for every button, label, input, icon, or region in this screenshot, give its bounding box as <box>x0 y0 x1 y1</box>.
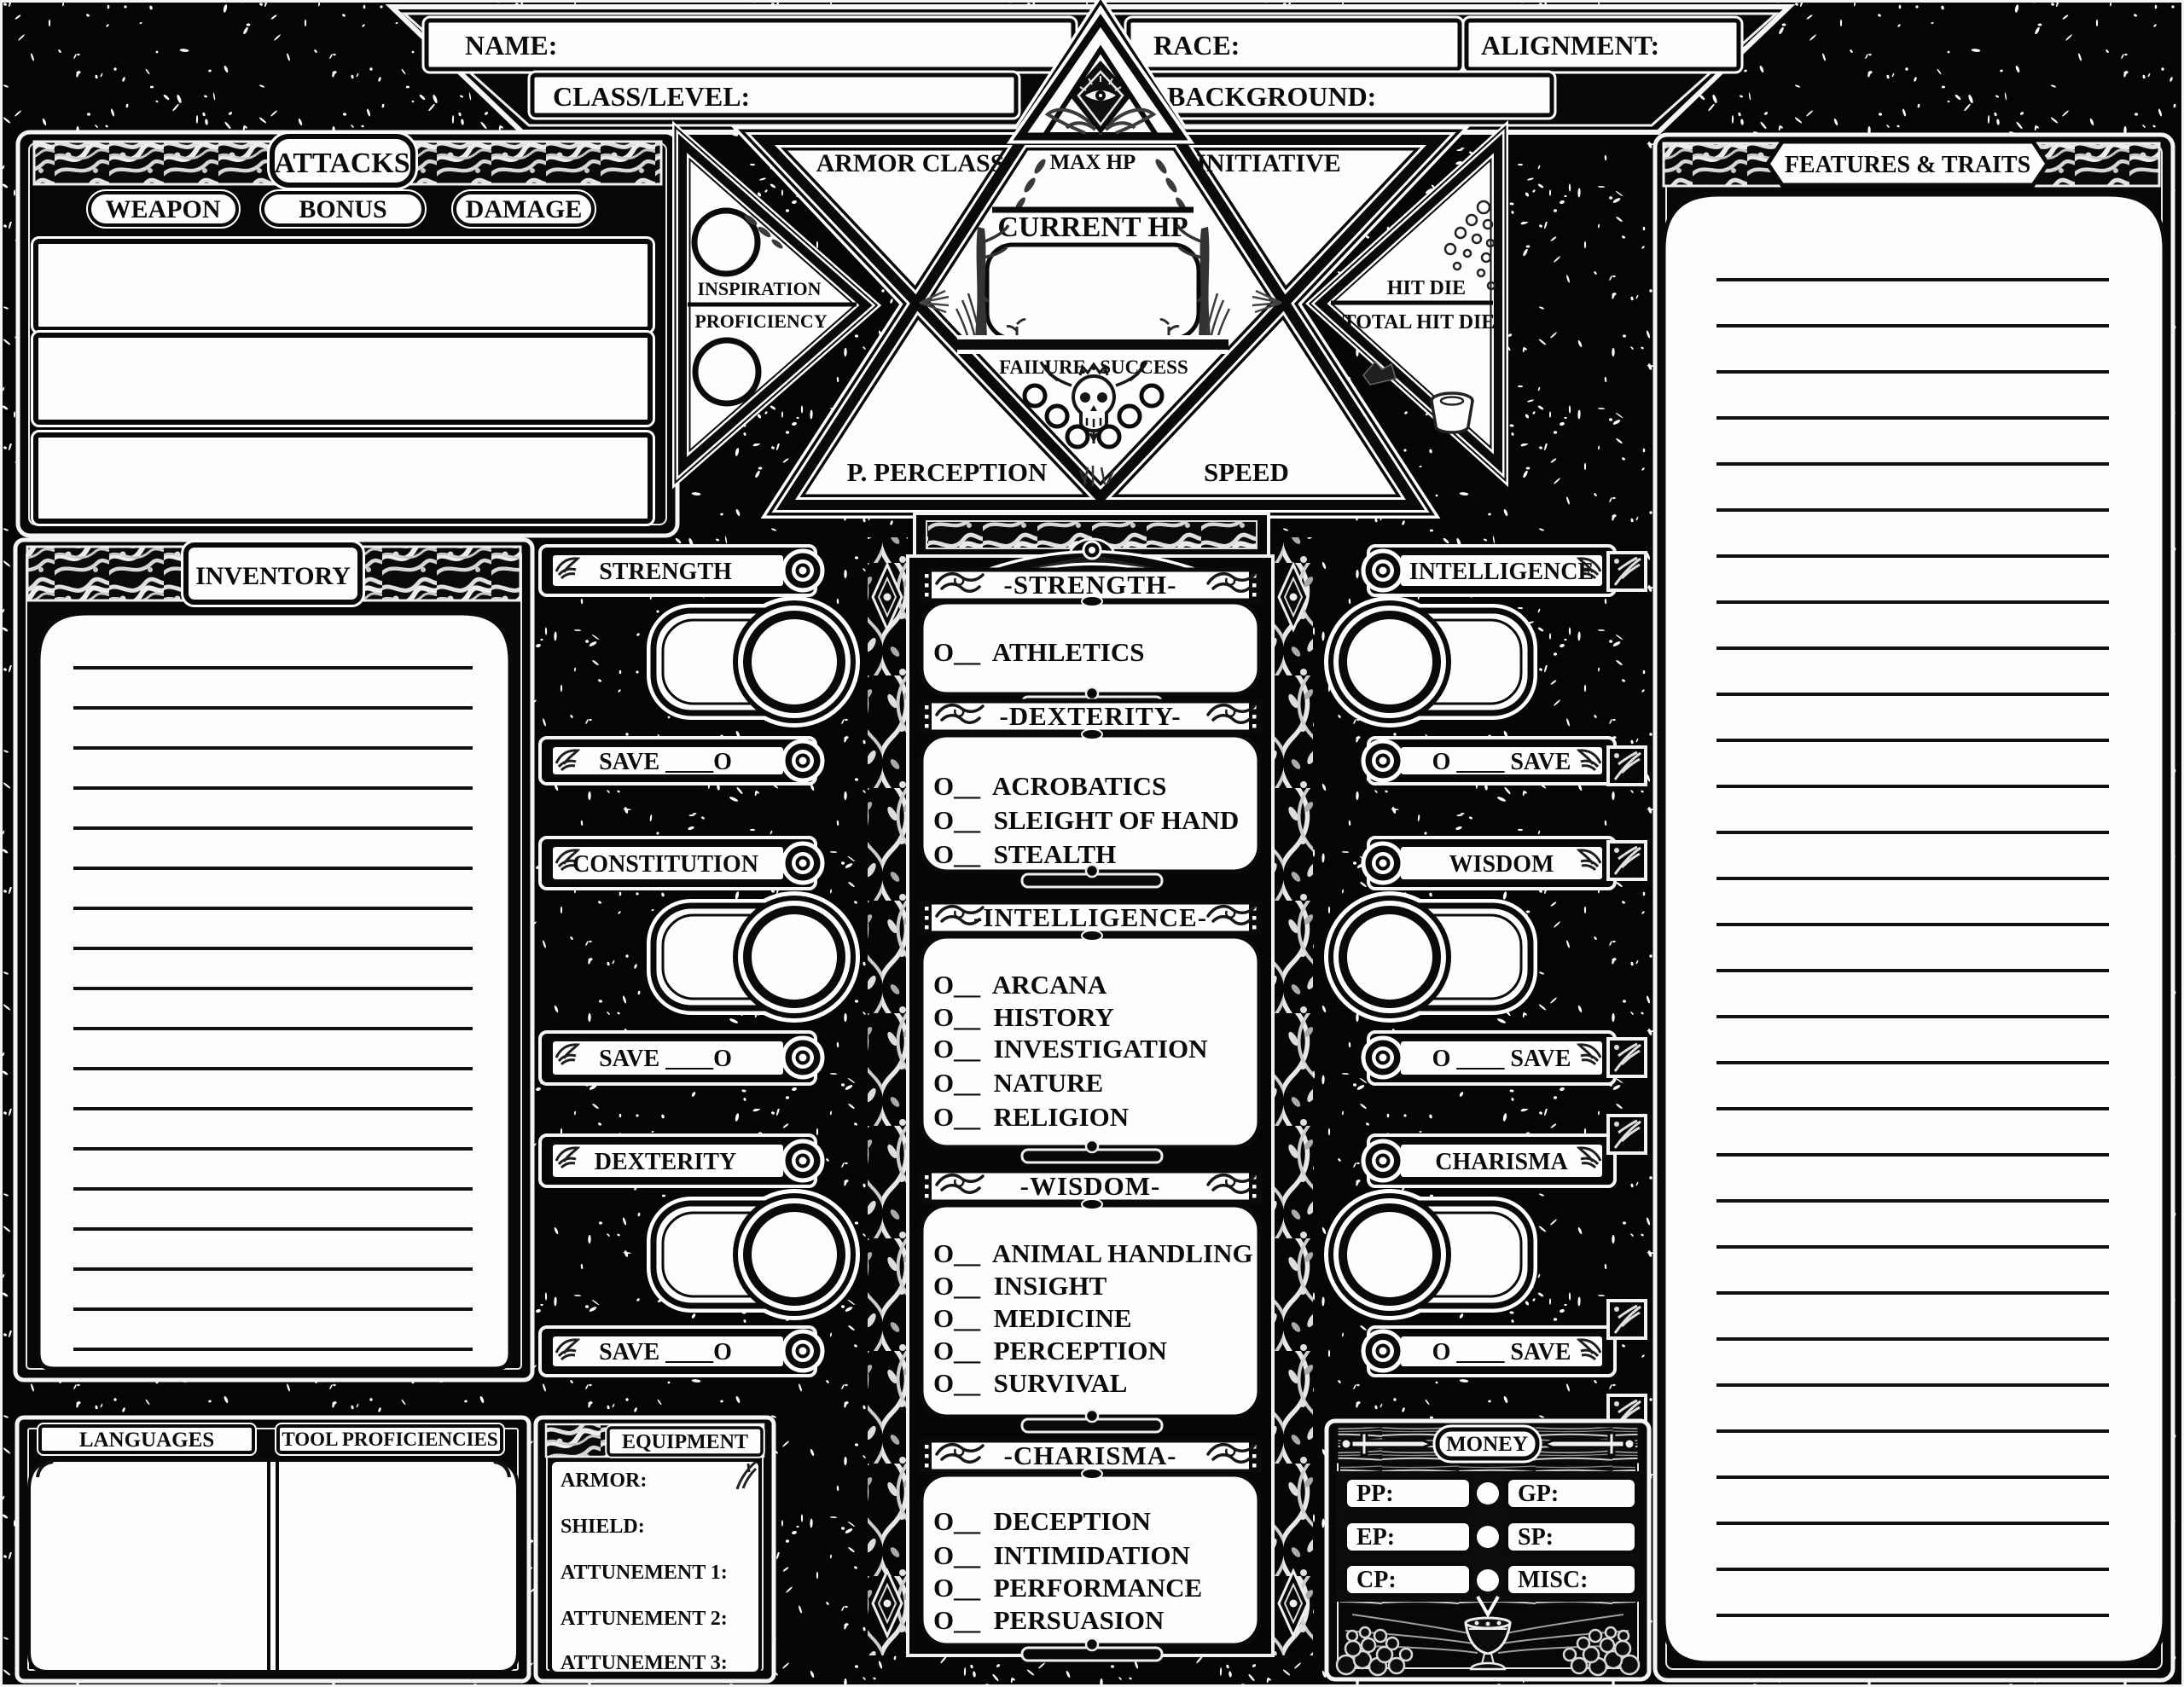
svg-text:-INTELLIGENCE-: -INTELLIGENCE- <box>973 902 1207 932</box>
svg-text:WISDOM: WISDOM <box>1449 851 1554 878</box>
svg-text:O ____ SAVE: O ____ SAVE <box>1432 1339 1571 1365</box>
svg-text:ATTUNEMENT 1:: ATTUNEMENT 1: <box>561 1562 728 1584</box>
svg-text:O__ DECEPTION: O__ DECEPTION <box>933 1506 1151 1536</box>
svg-text:INVENTORY: INVENTORY <box>195 562 351 590</box>
svg-text:O ____ SAVE: O ____ SAVE <box>1432 749 1571 775</box>
svg-text:ATTUNEMENT 2:: ATTUNEMENT 2: <box>561 1608 728 1630</box>
svg-text:ARMOR CLASS: ARMOR CLASS <box>816 149 1005 177</box>
svg-text:TOTAL HIT DIE: TOTAL HIT DIE <box>1343 311 1496 333</box>
svg-text:-CHARISMA-: -CHARISMA- <box>1004 1441 1177 1470</box>
svg-text:O__ PERFORMANCE: O__ PERFORMANCE <box>933 1573 1202 1603</box>
svg-text:MAX HP: MAX HP <box>1050 151 1136 174</box>
svg-text:EP:: EP: <box>1356 1524 1395 1551</box>
svg-text:STRENGTH: STRENGTH <box>599 559 732 585</box>
svg-text:O__ MEDICINE: O__ MEDICINE <box>933 1303 1132 1333</box>
svg-text:SPEED: SPEED <box>1204 457 1289 487</box>
svg-text:O__ ANIMAL HANDLING: O__ ANIMAL HANDLING <box>933 1238 1253 1268</box>
svg-text:CURRENT HP: CURRENT HP <box>997 212 1188 243</box>
svg-text:FEATURES & TRAITS: FEATURES & TRAITS <box>1785 152 2030 178</box>
svg-text:SP:: SP: <box>1518 1524 1554 1551</box>
svg-text:-WISDOM-: -WISDOM- <box>1020 1171 1161 1201</box>
svg-text:PROFICIENCY: PROFICIENCY <box>694 310 827 332</box>
svg-text:O__ PERCEPTION: O__ PERCEPTION <box>933 1336 1167 1365</box>
svg-text:LANGUAGES: LANGUAGES <box>79 1429 214 1452</box>
svg-text:O__ ATHLETICS: O__ ATHLETICS <box>933 637 1145 667</box>
svg-text:O ____ SAVE: O ____ SAVE <box>1432 1046 1571 1072</box>
svg-text:NAME:: NAME: <box>465 30 557 61</box>
svg-text:SAVE ____O: SAVE ____O <box>599 1046 732 1072</box>
svg-text:CONSTITUTION: CONSTITUTION <box>572 851 758 878</box>
svg-text:SHIELD:: SHIELD: <box>561 1516 645 1538</box>
svg-text:ATTUNEMENT 3:: ATTUNEMENT 3: <box>561 1652 728 1674</box>
svg-text:GP:: GP: <box>1518 1481 1559 1507</box>
svg-text:BACKGROUND:: BACKGROUND: <box>1167 81 1376 112</box>
svg-text:O__ HISTORY: O__ HISTORY <box>933 1002 1114 1032</box>
svg-text:O__ INSIGHT: O__ INSIGHT <box>933 1271 1107 1301</box>
svg-text:DEXTERITY: DEXTERITY <box>595 1149 736 1175</box>
svg-text:TOOL PROFICIENCIES: TOOL PROFICIENCIES <box>282 1429 497 1450</box>
svg-text:O__ RELIGION: O__ RELIGION <box>933 1102 1129 1132</box>
svg-text:O__ SLEIGHT OF HAND: O__ SLEIGHT OF HAND <box>933 805 1239 835</box>
svg-text:ATTACKS: ATTACKS <box>274 148 409 179</box>
svg-text:INITIATIVE: INITIATIVE <box>1196 149 1341 177</box>
svg-text:O__ NATURE: O__ NATURE <box>933 1068 1103 1098</box>
svg-text:O__ ARCANA: O__ ARCANA <box>933 970 1107 1000</box>
svg-text:CP:: CP: <box>1356 1567 1397 1593</box>
svg-text:O__ PERSUASION: O__ PERSUASION <box>933 1605 1164 1635</box>
svg-text:EQUIPMENT: EQUIPMENT <box>622 1431 748 1453</box>
svg-text:CHARISMA: CHARISMA <box>1435 1149 1568 1175</box>
svg-text:BONUS: BONUS <box>299 195 386 223</box>
svg-text:-DEXTERITY-: -DEXTERITY- <box>999 701 1181 731</box>
svg-text:ARMOR:: ARMOR: <box>561 1470 647 1492</box>
svg-text:INSPIRATION: INSPIRATION <box>697 278 821 299</box>
svg-text:DAMAGE: DAMAGE <box>466 195 583 223</box>
svg-text:SAVE ____O: SAVE ____O <box>599 749 732 775</box>
svg-text:SAVE ____O: SAVE ____O <box>599 1339 732 1365</box>
svg-text:HIT DIE: HIT DIE <box>1387 277 1466 299</box>
svg-text:RACE:: RACE: <box>1153 30 1240 61</box>
svg-text:O__ SURVIVAL: O__ SURVIVAL <box>933 1368 1127 1398</box>
svg-text:-STRENGTH-: -STRENGTH- <box>1004 570 1177 600</box>
svg-text:CLASS/LEVEL:: CLASS/LEVEL: <box>553 81 750 112</box>
svg-text:P. PERCEPTION: P. PERCEPTION <box>847 457 1048 487</box>
svg-text:MONEY: MONEY <box>1446 1433 1528 1456</box>
svg-text:WEAPON: WEAPON <box>106 195 221 223</box>
svg-text:O__ INTIMIDATION: O__ INTIMIDATION <box>933 1540 1190 1570</box>
svg-text:O__ ACROBATICS: O__ ACROBATICS <box>933 771 1166 801</box>
svg-text:MISC:: MISC: <box>1518 1567 1588 1593</box>
svg-text:O__ INVESTIGATION: O__ INVESTIGATION <box>933 1034 1208 1064</box>
svg-text:PP:: PP: <box>1356 1481 1394 1507</box>
svg-text:INTELLIGENCE: INTELLIGENCE <box>1409 559 1594 585</box>
svg-text:ALIGNMENT:: ALIGNMENT: <box>1481 30 1659 61</box>
